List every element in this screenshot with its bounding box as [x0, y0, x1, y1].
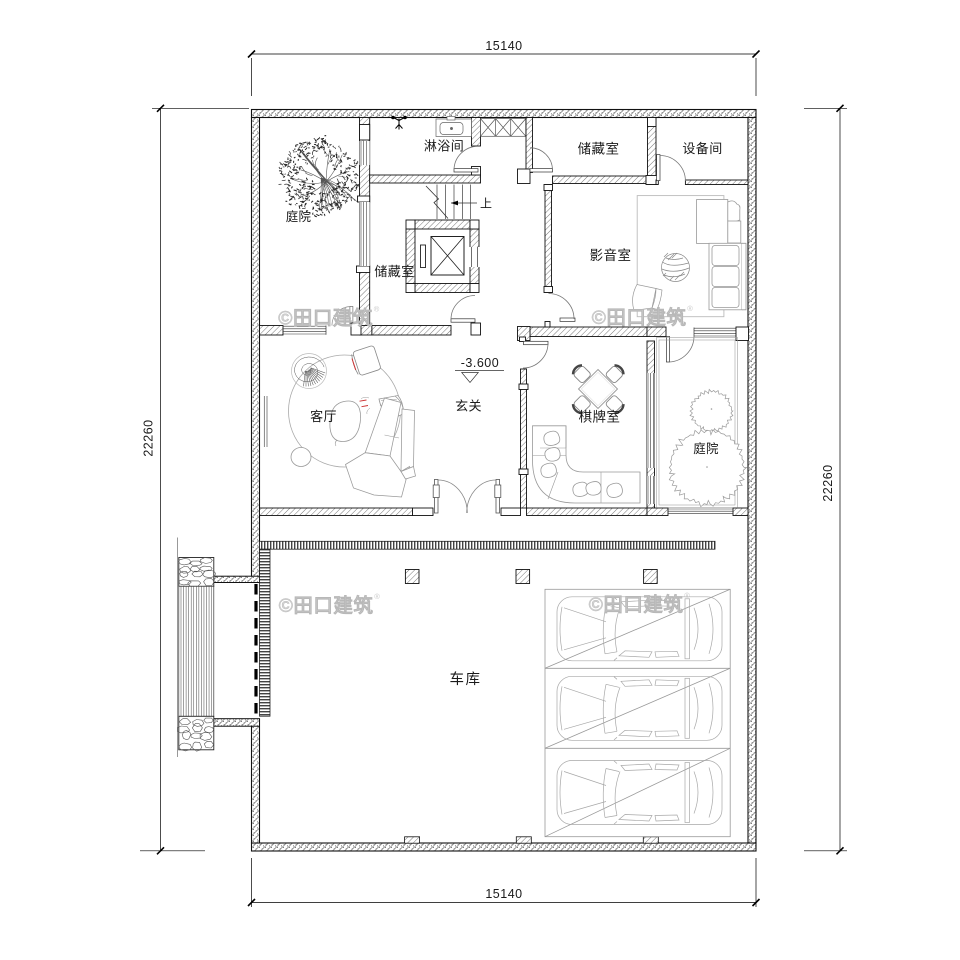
- svg-text:®: ®: [687, 304, 693, 313]
- svg-text:淋浴间: 淋浴间: [424, 139, 464, 154]
- svg-text:设备间: 设备间: [682, 141, 722, 156]
- svg-text:©田口建筑: ©田口建筑: [279, 594, 374, 617]
- svg-text:影音室: 影音室: [590, 247, 632, 263]
- svg-text:22260: 22260: [821, 464, 835, 501]
- svg-text:®: ®: [374, 592, 380, 601]
- svg-text:©田口建筑: ©田口建筑: [589, 593, 684, 616]
- svg-text:15140: 15140: [485, 887, 522, 901]
- svg-text:车库: 车库: [450, 671, 482, 688]
- svg-text:玄关: 玄关: [455, 399, 482, 414]
- svg-text:储藏室: 储藏室: [374, 264, 414, 279]
- svg-text:庭院: 庭院: [286, 209, 312, 224]
- svg-text:®: ®: [374, 305, 380, 314]
- svg-text:22260: 22260: [142, 419, 156, 456]
- svg-text:®: ®: [684, 591, 690, 600]
- svg-text:©田口建筑: ©田口建筑: [592, 306, 687, 329]
- svg-text:15140: 15140: [485, 39, 522, 53]
- svg-text:©田口建筑: ©田口建筑: [278, 307, 373, 330]
- svg-text:储藏室: 储藏室: [578, 141, 620, 157]
- svg-text:庭院: 庭院: [693, 441, 719, 456]
- svg-text:棋牌室: 棋牌室: [579, 409, 621, 425]
- svg-text:客厅: 客厅: [310, 409, 337, 424]
- svg-text:上: 上: [480, 197, 492, 211]
- svg-text:-3.600: -3.600: [461, 356, 499, 370]
